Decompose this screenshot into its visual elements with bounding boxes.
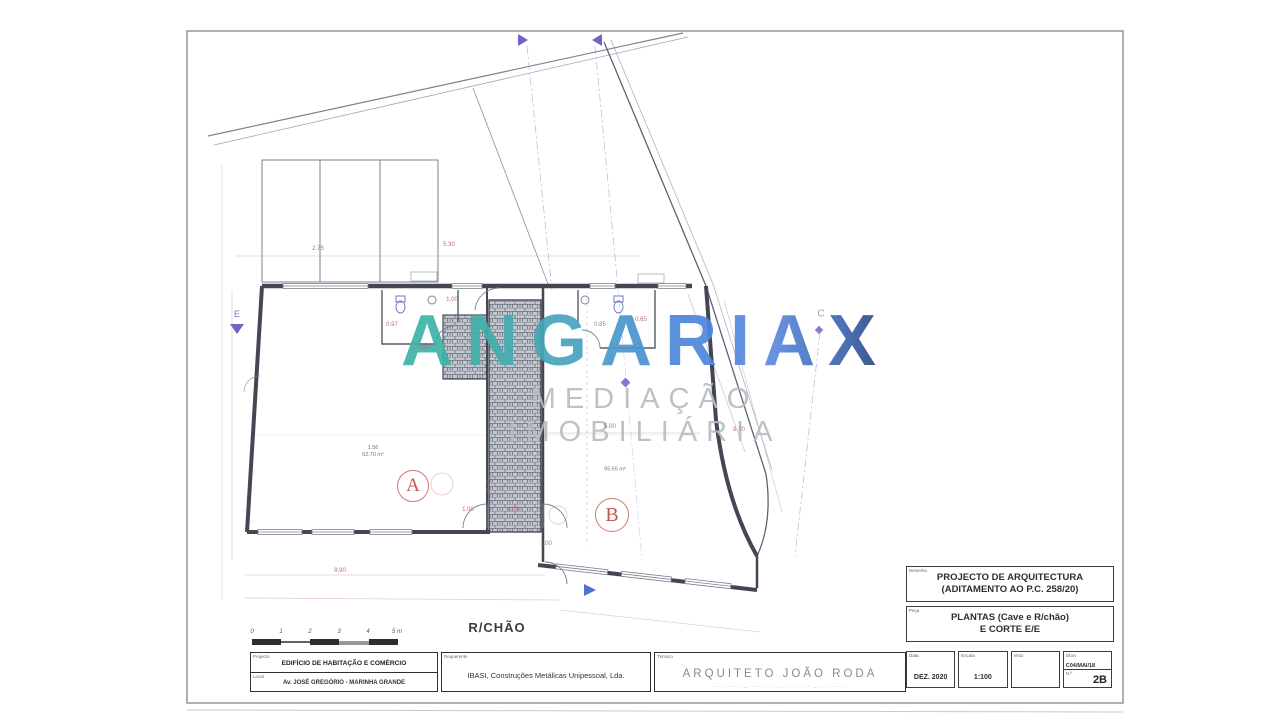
room-label-b: B [595,498,629,532]
technician-value: ARQUITETO JOÃO RODA [683,664,878,680]
scale-bar [252,639,398,645]
client-value: IBASI, Construções Metálicas Unipessoal,… [467,665,624,680]
title-block-piece: Peça PLANTAS (Cave e R/chão) E CORTE E/E [906,606,1114,642]
grid-marker-c-label: C [817,309,824,320]
meta-visto-cell: Visto [1011,651,1060,688]
patio-outline [262,160,664,283]
section-grid-lines [527,46,820,560]
room-b-area: 95.65 m² [604,466,626,473]
scanned-drawing-sheet: ANGARIAX MEDIAÇÃO IMOBILIÁRIA 1.000.970.… [0,0,1280,720]
room-b-area-line2: 95.65 m² [604,466,626,472]
room-a-area-line1: 1.56 [368,445,379,451]
piece-title-line2: E CORTE E/E [980,624,1040,636]
meta-scale-cell: Escala 1:100 [958,651,1007,688]
title-block-meta-row: Data DEZ. 2020 Escala 1:100 Visto Obra C… [906,651,1112,688]
info-box-project: Projecto EDIFÍCIO DE HABITAÇÃO E COMÉRCI… [250,652,438,692]
stair-core [443,300,541,532]
meta-date-cell: Data DEZ. 2020 [906,651,955,688]
info-box-client: Requerente IBASI, Construções Metálicas … [441,652,651,692]
title-block-drawing: Desenho PROJECTO DE ARQUITECTURA (ADITAM… [906,566,1114,602]
title-block-piece-label: Peça [909,608,919,613]
date-value: DEZ. 2020 [907,674,954,681]
sheet-number-label: N.º [1066,671,1072,676]
piece-title-line1: PLANTAS (Cave e R/chão) [951,612,1069,624]
client-row: IBASI, Construções Metálicas Unipessoal,… [442,653,650,691]
room-a-area-line2: 62.70 m² [362,452,384,458]
project-value: EDIFÍCIO DE HABITAÇÃO E COMÉRCIO [282,657,407,667]
local-row: Local Av. JOSÉ GREGÓRIO - MARINHA GRANDE [251,672,437,692]
scale-label: Escala [961,653,975,658]
date-label: Data [909,653,919,658]
section-marker-e-label: E [234,309,240,319]
floor-plan-title: R/CHÃO [468,620,525,635]
obra-value: C04/MAI/18 [1066,663,1095,669]
project-label: Projecto [253,654,270,659]
project-row: Projecto EDIFÍCIO DE HABITAÇÃO E COMÉRCI… [251,653,437,672]
obra-box: Obra C04/MAI/18 [1064,652,1111,670]
sheet-number-box: N.º 2B [1064,670,1111,687]
info-box-technician: Técnico ARQUITETO JOÃO RODA · ····· ····… [654,652,906,692]
local-value: Av. JOSÉ GREGÓRIO - MARINHA GRANDE [283,677,405,686]
doors [244,288,600,584]
room-b-letter: B [605,504,618,527]
room-label-a: A [397,470,429,502]
title-block-drawing-label: Desenho [909,568,927,573]
room-a-letter: A [406,475,420,497]
obra-label: Obra [1066,653,1076,658]
meta-obra-cell: Obra C04/MAI/18 N.º 2B [1063,651,1112,688]
sheet-number-value: 2B [1093,674,1107,686]
technician-address: · ····· ······ ·· — ······ ··· ··· — ···… [655,684,905,689]
local-label: Local [253,674,264,679]
visto-label: Visto [1014,653,1024,658]
scale-value: 1:100 [959,674,1006,681]
room-a-area: 1.56 62.70 m² [362,445,384,459]
drawing-title-line2: (ADITAMENTO AO P.C. 258/20) [942,584,1079,596]
drawing-title-line1: PROJECTO DE ARQUITECTURA [937,572,1083,584]
